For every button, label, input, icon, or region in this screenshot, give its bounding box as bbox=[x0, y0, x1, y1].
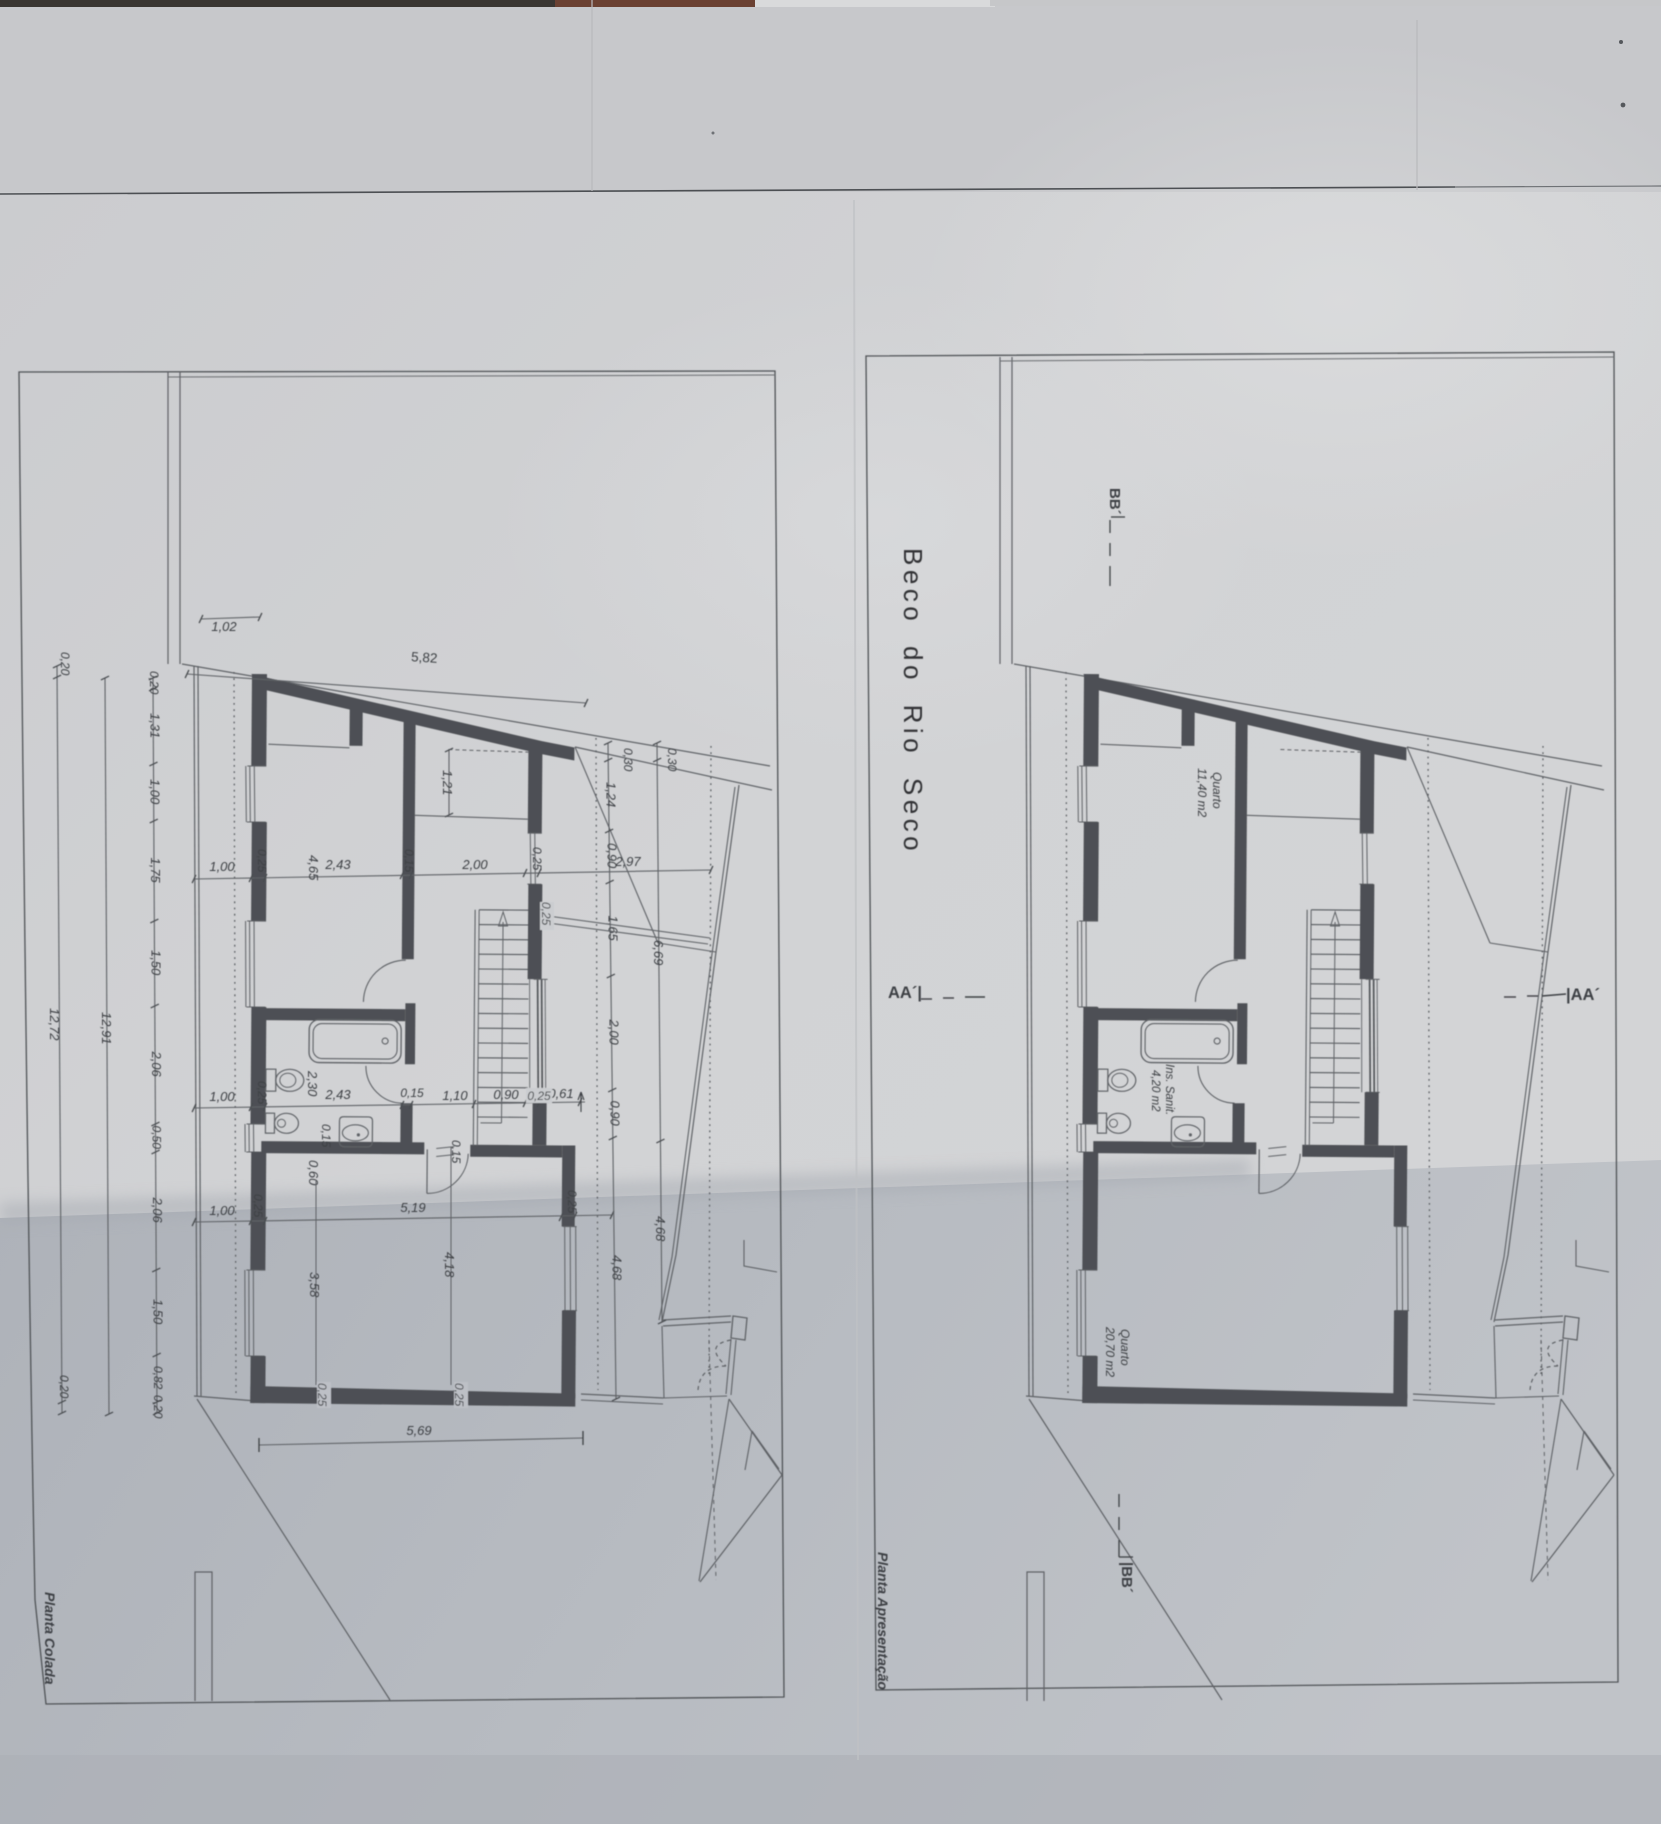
svg-text:5,19: 5,19 bbox=[400, 1200, 425, 1215]
svg-text:0,30: 0,30 bbox=[621, 748, 635, 772]
svg-text:2,06: 2,06 bbox=[150, 1196, 165, 1223]
svg-text:0,90: 0,90 bbox=[608, 1100, 623, 1126]
svg-text:1,75: 1,75 bbox=[148, 857, 163, 883]
svg-text:1,02: 1,02 bbox=[211, 619, 237, 634]
svg-text:0,60: 0,60 bbox=[306, 1160, 321, 1186]
svg-text:5,69: 5,69 bbox=[406, 1423, 431, 1438]
svg-text:1,00: 1,00 bbox=[209, 859, 235, 874]
svg-text:Quarto: Quarto bbox=[1210, 772, 1224, 809]
svg-text:4,68: 4,68 bbox=[609, 1255, 624, 1281]
svg-text:Beco do Rio Seco: Beco do Rio Seco bbox=[898, 548, 928, 855]
svg-text:0,50: 0,50 bbox=[150, 1126, 164, 1150]
svg-text:0,25: 0,25 bbox=[530, 847, 544, 871]
svg-text:0,30: 0,30 bbox=[665, 748, 679, 772]
svg-text:4,68: 4,68 bbox=[653, 1216, 668, 1242]
svg-text:0,15: 0,15 bbox=[400, 1086, 424, 1100]
svg-text:11,40 m2: 11,40 m2 bbox=[1195, 768, 1209, 817]
svg-text:0,25: 0,25 bbox=[251, 1194, 265, 1218]
svg-text:0,25: 0,25 bbox=[255, 849, 269, 873]
svg-text:0,25: 0,25 bbox=[527, 1089, 551, 1103]
svg-text:0,20: 0,20 bbox=[147, 671, 161, 695]
svg-text:1,00: 1,00 bbox=[148, 779, 163, 805]
svg-text:6,69: 6,69 bbox=[651, 940, 666, 965]
svg-text:2,43: 2,43 bbox=[324, 857, 351, 872]
svg-text:0,25: 0,25 bbox=[315, 1383, 329, 1407]
svg-text:1,10: 1,10 bbox=[442, 1088, 468, 1103]
svg-text:5,82: 5,82 bbox=[411, 649, 438, 666]
svg-text:0,90: 0,90 bbox=[604, 843, 619, 869]
svg-text:2,00: 2,00 bbox=[461, 857, 488, 872]
svg-text:0,25: 0,25 bbox=[539, 902, 553, 926]
svg-text:1,00: 1,00 bbox=[209, 1089, 235, 1104]
svg-text:AA´|: AA´| bbox=[888, 984, 922, 1002]
svg-text:1,21: 1,21 bbox=[440, 770, 455, 795]
svg-text:3,58: 3,58 bbox=[307, 1272, 322, 1298]
svg-text:4,20 m2: 4,20 m2 bbox=[1149, 1070, 1161, 1112]
svg-text:Planta Colada: Planta Colada bbox=[42, 1592, 58, 1685]
svg-text:0,82: 0,82 bbox=[151, 1366, 165, 1390]
svg-text:Ins. Sanit.: Ins. Sanit. bbox=[1163, 1064, 1175, 1115]
svg-text:0,15: 0,15 bbox=[402, 849, 416, 873]
svg-text:1,31: 1,31 bbox=[147, 713, 162, 738]
svg-text:2,43: 2,43 bbox=[324, 1087, 351, 1102]
svg-text:1,24: 1,24 bbox=[604, 782, 619, 807]
svg-text:12,72: 12,72 bbox=[47, 1008, 62, 1041]
svg-text:|AA´: |AA´ bbox=[1566, 986, 1600, 1004]
svg-text:|BB´: |BB´ bbox=[1118, 1562, 1135, 1593]
svg-text:0,25: 0,25 bbox=[255, 1081, 269, 1105]
svg-text:2,06: 2,06 bbox=[149, 1050, 164, 1077]
svg-text:0,20: 0,20 bbox=[151, 1395, 165, 1419]
svg-text:0,20: 0,20 bbox=[57, 1375, 71, 1399]
svg-text:Quarto: Quarto bbox=[1118, 1329, 1132, 1366]
svg-text:4,65: 4,65 bbox=[306, 855, 321, 881]
svg-text:0,25: 0,25 bbox=[452, 1383, 466, 1407]
svg-text:1,00: 1,00 bbox=[209, 1203, 235, 1218]
svg-text:2,00: 2,00 bbox=[607, 1018, 622, 1045]
svg-text:1,65: 1,65 bbox=[605, 915, 620, 941]
svg-text:0,20: 0,20 bbox=[58, 652, 72, 676]
svg-text:BB´: BB´ bbox=[1106, 488, 1123, 515]
svg-text:1,50: 1,50 bbox=[150, 1299, 165, 1325]
svg-text:0,25: 0,25 bbox=[565, 1190, 579, 1214]
svg-text:2,30: 2,30 bbox=[305, 1070, 320, 1097]
svg-text:4,18: 4,18 bbox=[442, 1252, 457, 1278]
svg-text:0,61: 0,61 bbox=[548, 1086, 573, 1101]
svg-text:1,50: 1,50 bbox=[149, 950, 164, 976]
svg-text:20,70 m2: 20,70 m2 bbox=[1103, 1326, 1117, 1377]
svg-text:0,15: 0,15 bbox=[319, 1124, 333, 1148]
svg-text:Planta Apresentação: Planta Apresentação bbox=[875, 1552, 891, 1690]
svg-text:0,90: 0,90 bbox=[493, 1087, 519, 1102]
svg-text:12,91: 12,91 bbox=[99, 1012, 114, 1045]
